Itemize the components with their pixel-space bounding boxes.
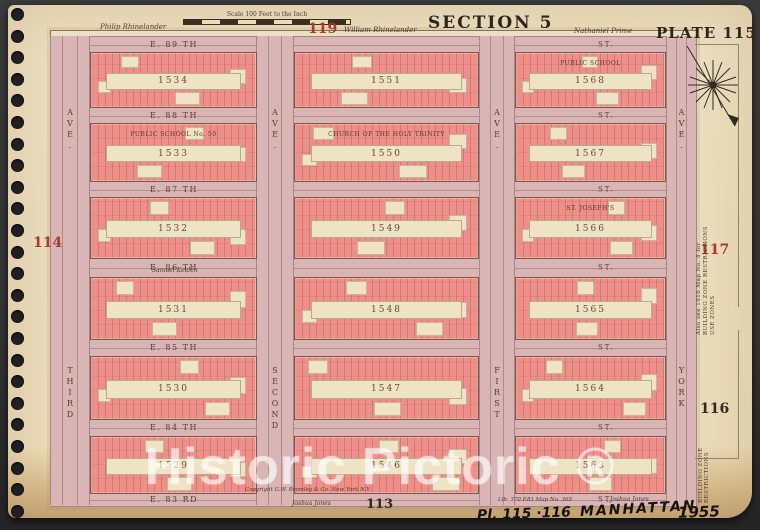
plate-title: PLATE 115 xyxy=(656,24,757,42)
city-block: 1534 xyxy=(90,52,257,108)
landmark-label: PUBLIC SCHOOL No. 50 xyxy=(104,132,243,139)
binding-hole xyxy=(11,246,24,259)
block-number: 1534 xyxy=(158,76,189,86)
street-label: E. 88 TH xyxy=(150,110,198,119)
courtyard-patch xyxy=(610,241,633,255)
block-number: 1548 xyxy=(371,305,402,315)
avenue-name-label: FIRST xyxy=(493,366,502,421)
landmark-label: CHURCH OF THE HOLY TRINITY xyxy=(310,132,464,139)
adjacent-plate-number-right-lower: 116 xyxy=(700,401,729,417)
block-number: 1566 xyxy=(575,224,606,234)
block-courtyard: 1531 xyxy=(106,301,241,319)
adjacent-plate-number-bottom: 113 xyxy=(366,497,393,512)
street-band: E. 86 THST. xyxy=(50,257,695,279)
avenue-name-label: YORK xyxy=(677,366,686,410)
city-block: 1547 xyxy=(294,356,479,420)
block-number: 1533 xyxy=(158,149,189,159)
block-number: 1530 xyxy=(158,384,189,394)
avenue-word-label: AVE. xyxy=(271,108,280,152)
block-courtyard: 1534 xyxy=(106,73,241,90)
avenue-corridor: AVE.FIRST xyxy=(479,36,515,505)
binding-hole xyxy=(11,73,24,86)
courtyard-patch xyxy=(175,92,200,105)
courtyard-patch xyxy=(190,241,215,255)
courtyard-patch xyxy=(385,201,405,215)
block-courtyard: 1566 xyxy=(529,220,651,238)
city-block: PUBLIC SCHOOL No. 501533 xyxy=(90,123,257,182)
landowner-name: Nathaniel Prime xyxy=(574,27,632,35)
handwritten-year-note: 1955 xyxy=(678,502,720,521)
street-suffix-label: ST. xyxy=(598,343,615,351)
block-courtyard: 1567 xyxy=(529,145,651,162)
block-number: 1550 xyxy=(371,149,402,159)
landowner-name: Samuel Kelden xyxy=(152,267,198,274)
handwritten-plate-note: Pl. 115 ∙116 xyxy=(477,504,571,523)
adjacent-plate-number-left: 114 xyxy=(33,235,62,251)
zone-restrictions-note: BUILDING ZONE RESTRICTIONS xyxy=(703,160,709,335)
courtyard-patch xyxy=(152,322,177,336)
courtyard-patch xyxy=(150,201,169,215)
section-title: SECTION 5 xyxy=(428,13,553,33)
courtyard-patch xyxy=(121,56,140,69)
courtyard-patch xyxy=(308,360,328,374)
block-courtyard: 1550 xyxy=(311,145,461,162)
courtyard-patch xyxy=(546,360,563,374)
street-label: E. 84 TH xyxy=(150,423,198,432)
avenue-car-tracks xyxy=(62,36,77,505)
city-block: 1532 xyxy=(90,197,257,259)
atlas-photo: E. 89 THST.E. 88 THST.E. 87 THST.E. 86 T… xyxy=(0,0,760,530)
courtyard-patch xyxy=(180,360,199,374)
binding-hole xyxy=(11,505,24,518)
courtyard-patch xyxy=(357,241,385,255)
avenue-corridor: AVE.SECOND xyxy=(256,36,294,505)
binding-hole xyxy=(11,30,24,43)
courtyard-patch xyxy=(374,402,402,416)
zone-restrictions-note: BUILDING ZONE RESTRICTIONS xyxy=(698,425,710,503)
landmark-label: PUBLIC SCHOOL xyxy=(528,61,653,68)
map-reference-note: Lib. 370 P.81 Map No. 368 xyxy=(498,497,572,503)
block-number: 1549 xyxy=(371,224,402,234)
block-courtyard: 1565 xyxy=(529,301,651,319)
city-block: 1567 xyxy=(515,123,666,182)
block-courtyard: 1564 xyxy=(529,380,651,399)
street-band: E. 84 THST. xyxy=(50,418,695,438)
courtyard-patch xyxy=(205,402,230,416)
avenue-name-label: THIRD xyxy=(66,366,75,421)
street-suffix-label: ST. xyxy=(598,40,615,48)
courtyard-patch xyxy=(346,281,366,295)
landmark-label: ST. JOSEPH'S xyxy=(528,206,653,213)
city-block: PUBLIC SCHOOL1568 xyxy=(515,52,666,108)
binding-hole xyxy=(11,181,24,194)
block-courtyard: 1547 xyxy=(311,380,461,399)
courtyard-patch xyxy=(399,165,427,178)
block-number: 1567 xyxy=(575,149,606,159)
landowner-name: Joshua Jones xyxy=(292,500,331,507)
street-suffix-label: ST. xyxy=(598,263,615,271)
courtyard-patch xyxy=(576,322,599,336)
binding-hole xyxy=(11,462,24,475)
block-number: 1547 xyxy=(371,384,402,394)
city-block: 1564 xyxy=(515,356,666,420)
avenue-name-label: SECOND xyxy=(271,366,280,432)
street-label: E. 85 TH xyxy=(150,343,198,352)
block-number: 1568 xyxy=(575,76,606,86)
courtyard-patch xyxy=(550,127,567,140)
city-block: 1548 xyxy=(294,277,479,340)
street-label: E. 87 TH xyxy=(150,184,198,193)
city-block: 1565 xyxy=(515,277,666,340)
watermark-text: Historic Pictoric ® xyxy=(145,437,616,497)
zone-restrictions-note: Also see 1916 Map No. 8 for xyxy=(696,150,702,335)
courtyard-patch xyxy=(341,92,369,105)
binding-hole xyxy=(11,116,24,129)
binding-hole xyxy=(11,397,24,410)
courtyard-patch xyxy=(562,165,585,178)
city-block: CHURCH OF THE HOLY TRINITY1550 xyxy=(294,123,479,182)
block-courtyard: 1548 xyxy=(311,301,461,319)
block-number: 1551 xyxy=(371,76,402,86)
block-number: 1531 xyxy=(158,305,189,315)
block-courtyard: 1549 xyxy=(311,220,461,238)
avenue-car-tracks xyxy=(490,36,504,505)
adjacent-plate-number-top: 119 xyxy=(308,21,337,37)
courtyard-patch xyxy=(116,281,135,295)
binding-hole xyxy=(11,224,24,237)
avenue-corridor: AVE.THIRD xyxy=(50,36,90,505)
landowner-name: Philip Rhinelander xyxy=(100,23,166,31)
courtyard-patch xyxy=(416,322,444,336)
street-band: E. 85 THST. xyxy=(50,338,695,358)
block-number: 1564 xyxy=(575,384,606,394)
courtyard-patch xyxy=(352,56,372,69)
block-courtyard: 1568 xyxy=(529,73,651,90)
street-suffix-label: ST. xyxy=(598,423,615,431)
city-block: 1530 xyxy=(90,356,257,420)
courtyard-patch xyxy=(623,402,646,416)
compass-rose-icon xyxy=(683,42,745,134)
block-courtyard: 1533 xyxy=(106,145,241,162)
binding-hole xyxy=(11,8,24,21)
binding-hole xyxy=(11,289,24,302)
binding-hole xyxy=(11,440,24,453)
binding-hole xyxy=(11,138,24,151)
block-courtyard: 1551 xyxy=(311,73,461,90)
block-courtyard: 1530 xyxy=(106,380,241,399)
avenue-word-label: AVE. xyxy=(493,108,502,152)
courtyard-patch xyxy=(577,281,594,295)
city-block: 1549 xyxy=(294,197,479,259)
courtyard-patch xyxy=(137,165,162,178)
block-courtyard: 1532 xyxy=(106,220,241,238)
avenue-car-tracks xyxy=(268,36,282,505)
landowner-name: William Rhinelander xyxy=(344,26,417,34)
scale-note: Scale 100 Feet to the Inch xyxy=(183,11,351,18)
city-block: 1551 xyxy=(294,52,479,108)
binding-hole xyxy=(11,354,24,367)
avenue-word-label: AVE. xyxy=(66,108,75,152)
block-number: 1532 xyxy=(158,224,189,234)
zone-restrictions-note: USE ZONES xyxy=(710,170,716,335)
block-number: 1565 xyxy=(575,305,606,315)
city-block: 1531 xyxy=(90,277,257,340)
street-label: E. 89 TH xyxy=(150,40,198,49)
courtyard-patch xyxy=(596,92,619,105)
street-suffix-label: ST. xyxy=(598,111,615,119)
city-block: ST. JOSEPH'S1566 xyxy=(515,197,666,259)
binding-hole xyxy=(11,332,24,345)
street-suffix-label: ST. xyxy=(598,185,615,193)
